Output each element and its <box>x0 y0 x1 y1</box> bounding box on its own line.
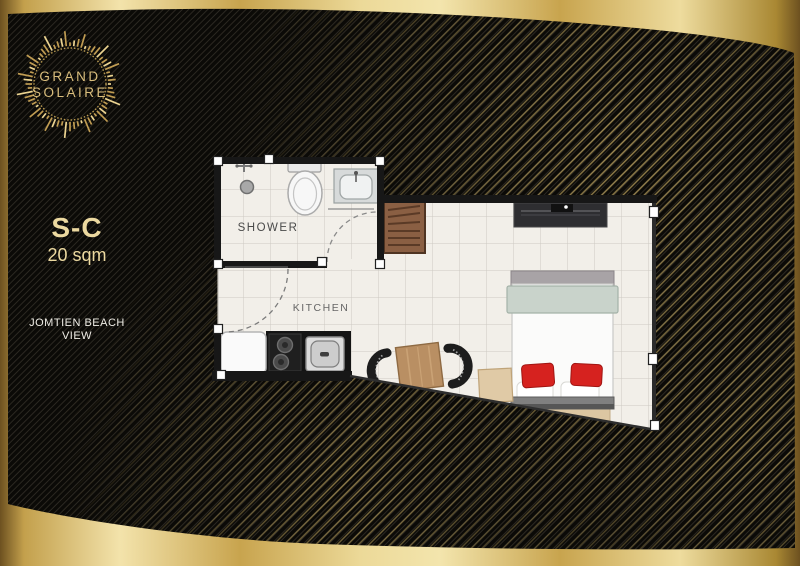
toilet-icon <box>288 162 322 215</box>
kitchen-label: KITCHEN <box>293 302 350 314</box>
wardrobe-icon <box>384 202 425 253</box>
bed-blanket <box>507 286 618 313</box>
view-label-line2: VIEW <box>62 330 92 342</box>
cooktop-icon <box>269 334 301 371</box>
logo-text-line1: GRAND <box>39 69 100 84</box>
red-cushion <box>521 363 555 388</box>
floor-plan-poster: SHOWER KITCHEN GRAND SOLAIRE S-C 20 sqm … <box>0 0 800 566</box>
window-wall <box>652 203 656 430</box>
refrigerator-icon <box>221 332 266 374</box>
kitchen-counter <box>221 331 351 374</box>
tv-console-icon <box>514 203 607 227</box>
logo-text-line2: SOLAIRE <box>32 85 108 100</box>
poster-canvas: SHOWER KITCHEN GRAND SOLAIRE S-C 20 sqm … <box>0 0 800 566</box>
bathroom-doorway <box>327 259 377 269</box>
kitchen-bottom-wall <box>212 371 352 381</box>
red-cushion <box>570 363 602 387</box>
unit-code-label: S-C <box>51 212 102 243</box>
top-wall <box>377 195 657 203</box>
kitchen-sink-icon <box>306 337 344 371</box>
wash-basin-icon <box>334 169 378 203</box>
view-label-line1: JOMTIEN BEACH <box>29 317 125 329</box>
bedside-table-icon <box>478 368 513 403</box>
unit-area-label: 20 sqm <box>47 245 106 265</box>
bathroom-label: SHOWER <box>238 222 299 234</box>
